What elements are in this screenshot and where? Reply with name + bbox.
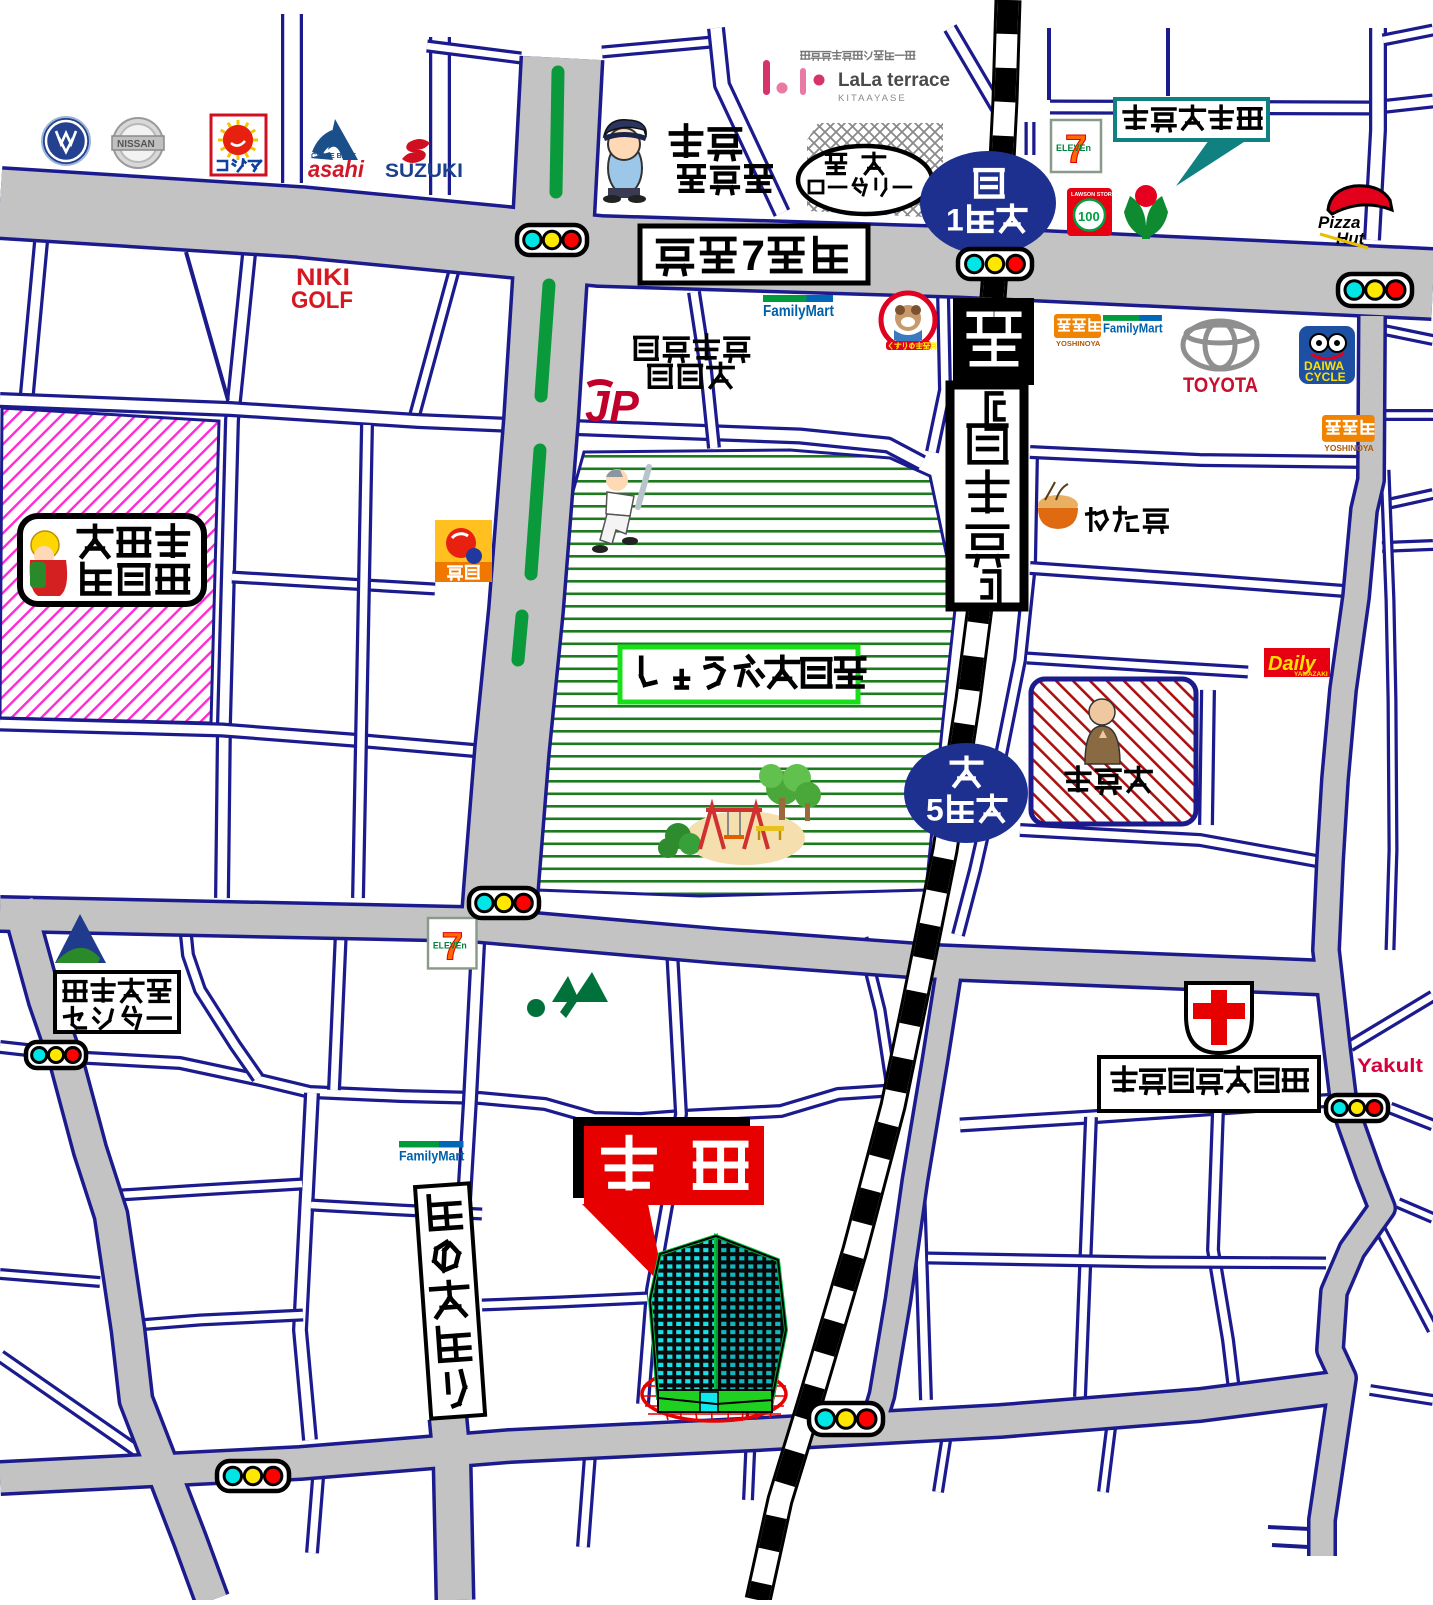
svg-text:FamilyMart: FamilyMart [763,303,834,320]
svg-text:LaLa terrace: LaLa terrace [838,70,950,91]
svg-text:CYCLE: CYCLE [1305,370,1346,384]
svg-text:NISSAN: NISSAN [117,139,155,150]
svg-text:FamilyMart: FamilyMart [1103,321,1163,336]
svg-text:Yakult: Yakult [1357,1056,1424,1077]
svg-text:LAWSON STORE: LAWSON STORE [1071,192,1116,198]
svg-text:YAMAZAKI: YAMAZAKI [1294,671,1328,678]
svg-text:ELEVEn: ELEVEn [433,940,467,950]
svg-text:TOYOTA: TOYOTA [1183,374,1258,397]
svg-text:1: 1 [946,201,964,237]
svg-text:SUZUKI: SUZUKI [385,161,463,182]
svg-text:5: 5 [926,791,944,827]
svg-text:YOSHINOYA: YOSHINOYA [1056,339,1101,348]
svg-text:JP: JP [585,382,639,431]
svg-text:YOSHINOYA: YOSHINOYA [1324,443,1374,453]
svg-text:KITAAYASE: KITAAYASE [838,93,907,104]
svg-text:asahi: asahi [308,156,365,182]
svg-text:7: 7 [741,232,765,279]
svg-text:100: 100 [1078,209,1100,224]
svg-text:GOLF: GOLF [291,287,353,314]
svg-text:FamilyMart: FamilyMart [399,1148,465,1164]
svg-text:ELEVEn: ELEVEn [1056,143,1091,153]
